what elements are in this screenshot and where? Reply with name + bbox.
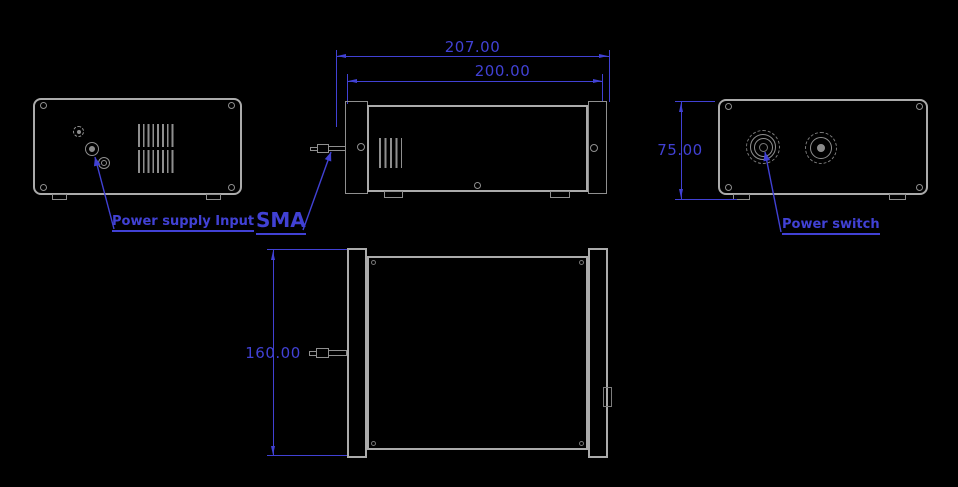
sma-connector-top-shaft [328, 350, 347, 356]
screw-icon [371, 441, 376, 446]
dimension-line [347, 81, 603, 82]
screw-icon [579, 260, 584, 265]
screw-icon [40, 102, 47, 109]
dim-inner-width: 200.00 [462, 62, 543, 80]
extension-line [609, 50, 610, 102]
foot-icon [52, 194, 67, 200]
screw-icon [228, 184, 235, 191]
right-bar-hole-icon [590, 144, 598, 152]
subpanel-hole-icon [357, 143, 365, 151]
top-view-rear-bar [588, 248, 608, 458]
dim-panel-height: 75.00 [654, 141, 706, 159]
screw-icon [579, 441, 584, 446]
aux-knob-center [817, 144, 825, 152]
top-view-front-bar [347, 248, 367, 458]
arrow-icon [679, 103, 683, 112]
arrow-icon [337, 54, 346, 58]
dim-overall-width: 207.00 [432, 38, 513, 56]
arrow-icon [271, 446, 275, 455]
extension-line [602, 74, 603, 102]
vent-grid-icon [138, 124, 176, 147]
foot-icon [889, 194, 906, 200]
sma-leader-line [303, 152, 331, 230]
screw-icon [725, 184, 732, 191]
arrow-icon [593, 79, 602, 83]
screw-icon [916, 103, 923, 110]
sma-connector-top-tip [309, 351, 317, 356]
sma-connector-shaft [328, 146, 346, 151]
power-supply-input-label: Power supply Input [112, 214, 254, 232]
power-switch-label: Power switch [782, 217, 880, 235]
screw-icon [228, 102, 235, 109]
extension-line [336, 50, 337, 127]
dim-depth: 160.00 [240, 344, 306, 362]
aux-connector-inner [101, 160, 107, 166]
screw-icon [916, 184, 923, 191]
sma-connector-tip [310, 147, 318, 151]
power-switch-center [759, 143, 768, 152]
arrow-icon [599, 54, 608, 58]
screw-icon [40, 184, 47, 191]
extension-line [267, 455, 347, 456]
foot-icon [550, 191, 570, 198]
top-view-main-body [367, 256, 588, 450]
mechanical-drawing: Power supply Input 207.00 200.00 [0, 0, 958, 487]
screw-icon [725, 103, 732, 110]
foot-icon [384, 191, 403, 198]
foot-icon [206, 194, 221, 200]
arrow-icon [271, 251, 275, 260]
sma-label: SMA [256, 208, 306, 235]
extension-line [267, 249, 347, 250]
power-connector-center [89, 146, 95, 152]
extension-line [675, 199, 737, 200]
body-hole-icon [474, 182, 481, 189]
arrow-icon [679, 189, 683, 198]
vent-grid-icon [379, 138, 402, 168]
screw-icon [371, 260, 376, 265]
arrow-icon [348, 79, 357, 83]
vent-grid-icon [138, 150, 176, 173]
dimension-line [336, 56, 609, 57]
knurled-connector-dot [77, 130, 81, 134]
rear-notch-icon [603, 387, 612, 407]
